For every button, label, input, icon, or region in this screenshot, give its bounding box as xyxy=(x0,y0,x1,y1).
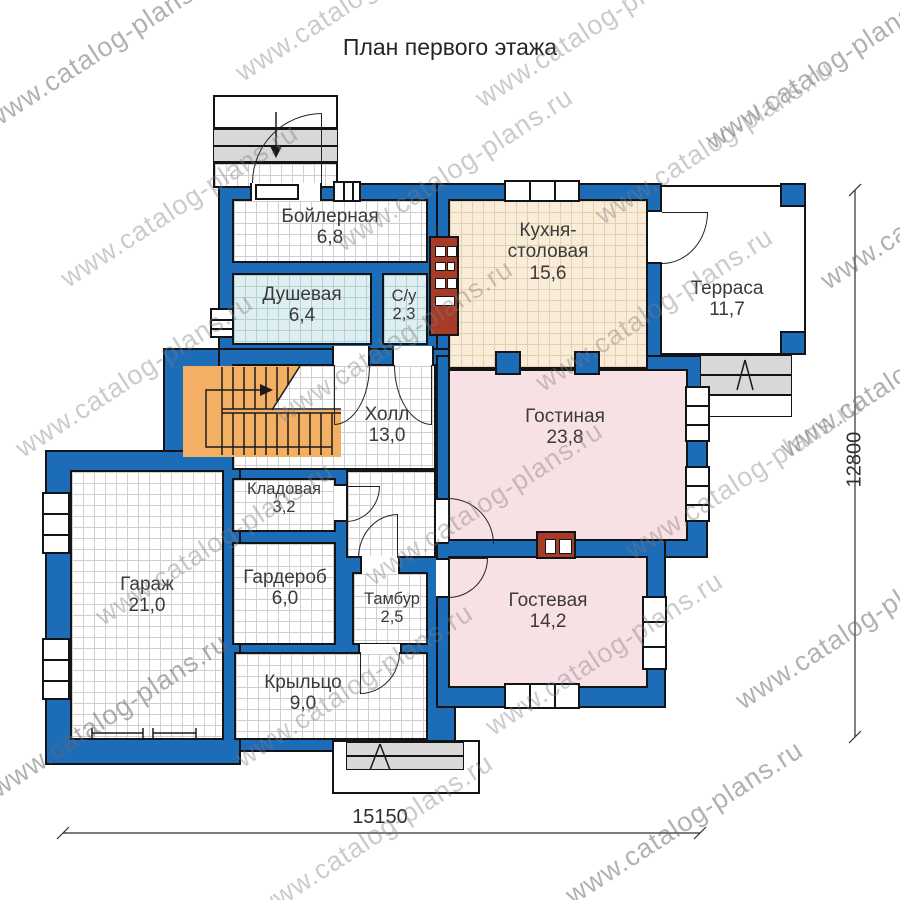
pillar xyxy=(495,351,521,375)
room-porch-label: Крыльцо9,0 xyxy=(238,672,368,715)
door-opening xyxy=(436,498,448,544)
window xyxy=(255,184,299,200)
room-storage-label: Кладовая3,2 xyxy=(228,480,340,517)
room-boiler-label: Бойлерная6,8 xyxy=(240,206,420,249)
room-terrace-label: Терраса11,7 xyxy=(652,278,802,321)
dimension-width-label: 15150 xyxy=(320,806,440,829)
porch-step xyxy=(346,756,464,770)
page-title: План первого этажа xyxy=(0,34,900,61)
window xyxy=(504,683,580,709)
room-wc-label: С/у2,3 xyxy=(378,287,430,324)
terrace-step xyxy=(700,355,792,375)
window xyxy=(685,386,710,442)
room-shower-label: Душевая6,4 xyxy=(232,284,372,327)
window xyxy=(333,181,361,202)
window xyxy=(685,466,710,522)
room-kitchen-label: Кухня-столовая15,6 xyxy=(458,220,638,284)
dimension-height-label: 12800 xyxy=(844,400,867,520)
window xyxy=(42,638,70,700)
window xyxy=(42,492,70,554)
door-opening xyxy=(360,556,400,574)
room-hall-label: Холл13,0 xyxy=(332,404,442,447)
terrace-post xyxy=(780,183,806,207)
door-opening xyxy=(332,346,370,366)
watermark: www.catalog-plans.ru xyxy=(560,734,809,900)
fireplace xyxy=(536,531,576,559)
watermark: www.catalog-plans.ru xyxy=(815,119,900,296)
terrace-landing xyxy=(700,395,792,417)
pillar xyxy=(574,351,600,375)
terrace-post xyxy=(780,331,806,355)
door-opening xyxy=(392,346,434,366)
room-guest-label: Гостевая14,2 xyxy=(448,590,648,633)
room-tambour-label: Тамбур2,5 xyxy=(340,590,444,627)
door-opening xyxy=(648,210,662,264)
watermark: www.catalog-plans.ru xyxy=(700,0,900,156)
watermark: www.catalog-plans.ru xyxy=(730,539,900,716)
porch-step xyxy=(346,742,464,756)
terrace-frame xyxy=(660,185,806,355)
window xyxy=(210,308,234,338)
window xyxy=(504,180,580,202)
terrace-step xyxy=(700,375,792,395)
room-wardrobe-label: Гардероб6,0 xyxy=(226,567,344,610)
room-garage-label: Гараж21,0 xyxy=(87,574,207,617)
floor-plan-canvas: План первого этажа xyxy=(0,0,900,900)
chimney-block xyxy=(429,236,459,336)
room-living-label: Гостиная23,8 xyxy=(460,406,670,449)
watermark: www.catalog-plans.ru xyxy=(0,0,229,136)
